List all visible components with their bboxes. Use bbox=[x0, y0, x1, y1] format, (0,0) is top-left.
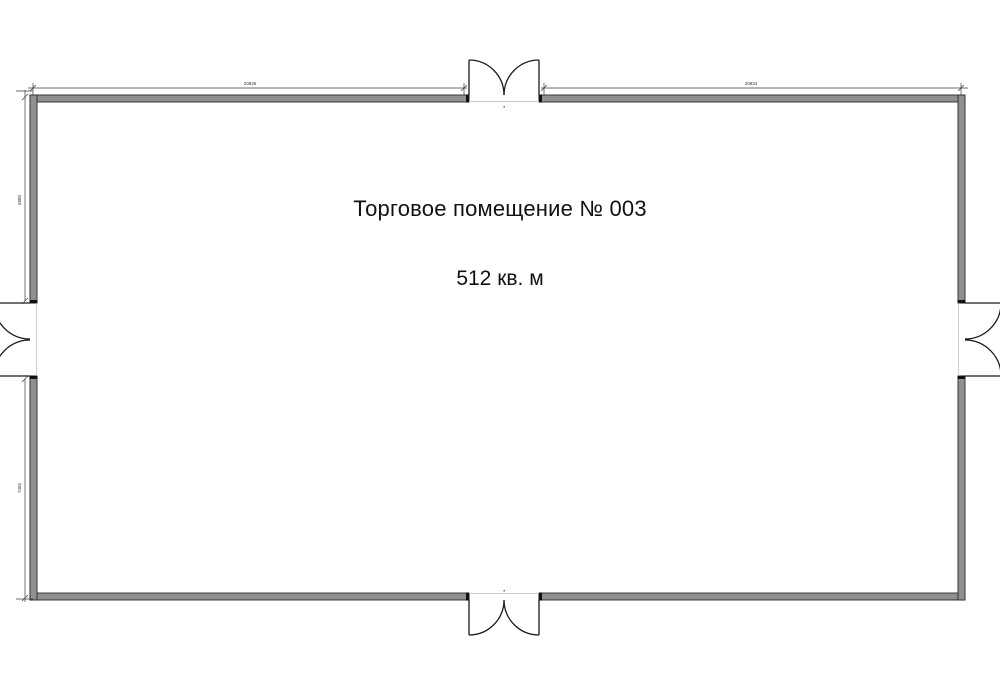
room-title: Торговое помещение № 003 bbox=[0, 196, 1000, 222]
door-center-marks bbox=[504, 106, 505, 591]
door-bottom-swing-right bbox=[504, 600, 539, 635]
door-left bbox=[0, 303, 30, 376]
wall-left-lower-segment bbox=[30, 376, 37, 600]
floor-plan: 20826 20834 6880 7465 Торговое помещение… bbox=[0, 0, 1000, 700]
room-area: 512 кв. м bbox=[0, 267, 1000, 291]
wall-right-lower-segment bbox=[958, 376, 965, 600]
wall-bottom-right-segment bbox=[539, 593, 965, 600]
door-right-swing-lower bbox=[965, 340, 1000, 376]
dim-label-top-right: 20834 bbox=[745, 81, 758, 86]
door-jamb-caps bbox=[30, 95, 966, 601]
wall-bottom-left-segment bbox=[30, 593, 469, 600]
door-bottom bbox=[469, 600, 539, 635]
door-left-swing-lower bbox=[0, 340, 30, 376]
walls bbox=[30, 95, 965, 600]
door-top-swing-right bbox=[504, 60, 539, 95]
dimensions bbox=[16, 83, 968, 602]
thresholds bbox=[37, 102, 959, 594]
door-right-swing-upper bbox=[965, 303, 1000, 339]
door-top-swing-left bbox=[469, 60, 504, 95]
floor-plan-drawing: 20826 20834 6880 7465 bbox=[0, 0, 1000, 700]
door-right bbox=[965, 303, 1000, 376]
door-left-swing-upper bbox=[0, 303, 30, 339]
door-bottom-swing-left bbox=[469, 600, 504, 635]
dim-label-top-left: 20826 bbox=[244, 81, 257, 86]
wall-top-left-segment bbox=[30, 95, 469, 102]
dim-label-left-lower: 7465 bbox=[17, 482, 22, 493]
door-top bbox=[469, 60, 539, 95]
wall-top-right-segment bbox=[539, 95, 965, 102]
